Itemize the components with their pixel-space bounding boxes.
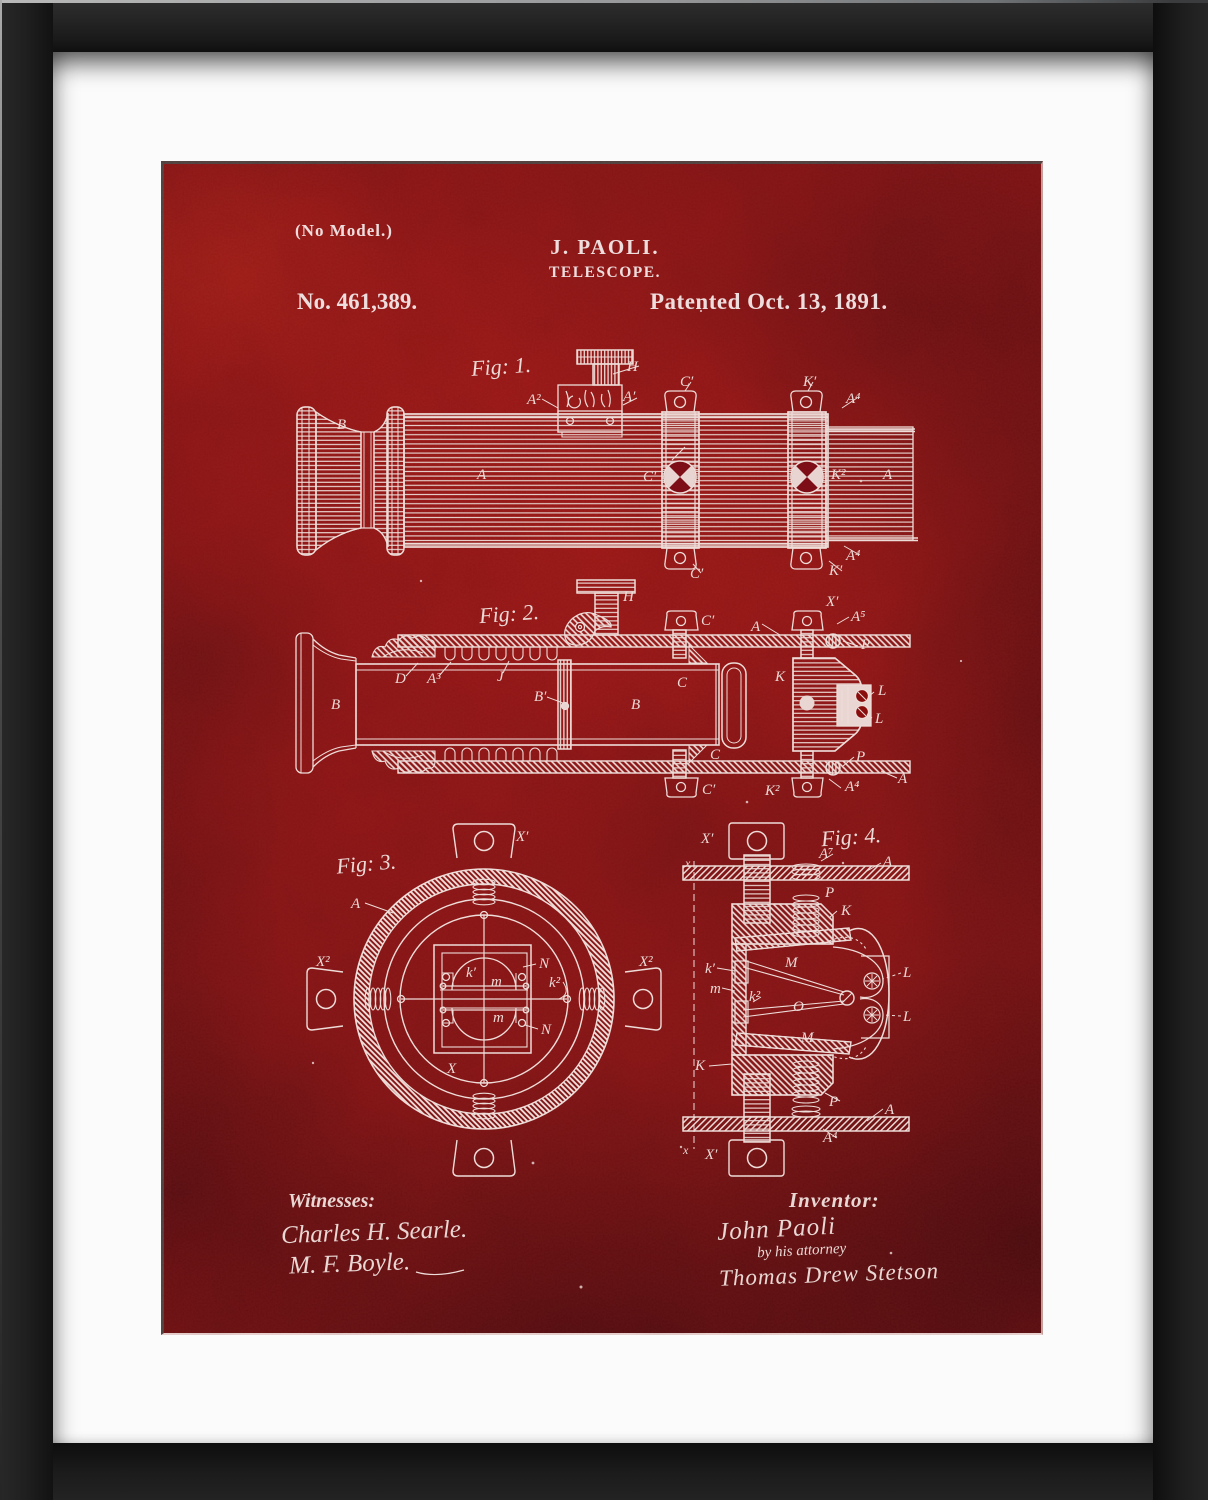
svg-text:L: L bbox=[877, 683, 886, 699]
svg-text:K: K bbox=[774, 669, 786, 685]
svg-text:k²: k² bbox=[749, 989, 761, 1005]
svg-text:X²: X² bbox=[638, 954, 653, 970]
svg-text:x: x bbox=[684, 856, 691, 870]
svg-text:P: P bbox=[824, 885, 834, 901]
svg-text:Fig: 3.: Fig: 3. bbox=[334, 848, 397, 878]
svg-text:Inventor:: Inventor: bbox=[788, 1188, 880, 1212]
svg-text:P: P bbox=[855, 749, 865, 765]
svg-text:A′: A′ bbox=[622, 389, 636, 405]
svg-text:A²: A² bbox=[526, 392, 541, 408]
svg-text:A: A bbox=[882, 467, 893, 483]
svg-text:B: B bbox=[331, 697, 340, 713]
svg-text:K²: K² bbox=[830, 467, 846, 483]
svg-text:B′: B′ bbox=[534, 689, 547, 705]
svg-text:A: A bbox=[897, 771, 908, 787]
svg-text:A: A bbox=[476, 467, 487, 483]
svg-text:K²: K² bbox=[764, 783, 780, 799]
svg-text:Thomas Drew Stetson: Thomas Drew Stetson bbox=[719, 1258, 940, 1291]
svg-text:C: C bbox=[710, 747, 721, 763]
svg-text:A³: A³ bbox=[426, 671, 441, 687]
svg-text:L: L bbox=[874, 711, 883, 727]
svg-text:k′: k′ bbox=[705, 961, 716, 977]
svg-text:x: x bbox=[682, 1143, 689, 1157]
svg-text:A: A bbox=[882, 854, 893, 870]
svg-text:C′: C′ bbox=[702, 782, 716, 798]
svg-text:A: A bbox=[750, 619, 761, 635]
svg-text:Fig: 2.: Fig: 2. bbox=[477, 599, 539, 628]
svg-text:by his attorney: by his attorney bbox=[757, 1241, 847, 1262]
svg-text:N: N bbox=[540, 1022, 552, 1038]
svg-text:K: K bbox=[694, 1058, 706, 1074]
svg-text:Charles H. Searle.: Charles H. Searle. bbox=[281, 1216, 468, 1249]
svg-text:M. F. Boyle.: M. F. Boyle. bbox=[288, 1248, 411, 1279]
svg-text:X′: X′ bbox=[825, 594, 839, 610]
svg-text:X²: X² bbox=[315, 954, 330, 970]
svg-text:Fig: 1.: Fig: 1. bbox=[469, 352, 531, 381]
svg-text:B: B bbox=[631, 697, 640, 713]
svg-text:A: A bbox=[350, 896, 361, 912]
svg-text:A: A bbox=[884, 1102, 895, 1118]
svg-text:Witnesses:: Witnesses: bbox=[288, 1190, 375, 1212]
svg-text:O: O bbox=[793, 999, 804, 1015]
svg-text:A⁷: A⁷ bbox=[818, 846, 833, 862]
svg-text:L: L bbox=[902, 965, 911, 981]
svg-text:A⁴: A⁴ bbox=[844, 779, 859, 795]
svg-text:M: M bbox=[800, 1030, 815, 1046]
svg-text:A⁵: A⁵ bbox=[850, 609, 865, 625]
svg-text:P: P bbox=[828, 1094, 838, 1110]
svg-text:m: m bbox=[493, 1010, 504, 1026]
svg-text:K: K bbox=[840, 903, 852, 919]
svg-text:m: m bbox=[710, 981, 721, 997]
svg-text:L: L bbox=[902, 1009, 911, 1025]
svg-text:k′: k′ bbox=[466, 965, 477, 981]
svg-text:C: C bbox=[677, 675, 688, 691]
svg-text:John Paoli: John Paoli bbox=[716, 1213, 836, 1246]
svg-text:P: P bbox=[860, 637, 870, 653]
svg-text:A⁴: A⁴ bbox=[822, 1130, 837, 1146]
svg-text:N: N bbox=[538, 956, 550, 972]
svg-text:m: m bbox=[491, 974, 502, 990]
svg-text:M: M bbox=[784, 955, 799, 971]
svg-text:D: D bbox=[394, 671, 406, 687]
svg-text:X: X bbox=[446, 1061, 457, 1077]
svg-text:C′: C′ bbox=[701, 613, 715, 629]
svg-text:C′: C′ bbox=[643, 469, 657, 485]
svg-text:X′: X′ bbox=[704, 1147, 718, 1163]
svg-text:k²: k² bbox=[549, 975, 561, 991]
svg-text:B: B bbox=[337, 417, 346, 433]
svg-text:X′: X′ bbox=[700, 831, 714, 847]
svg-text:X′: X′ bbox=[515, 829, 529, 845]
